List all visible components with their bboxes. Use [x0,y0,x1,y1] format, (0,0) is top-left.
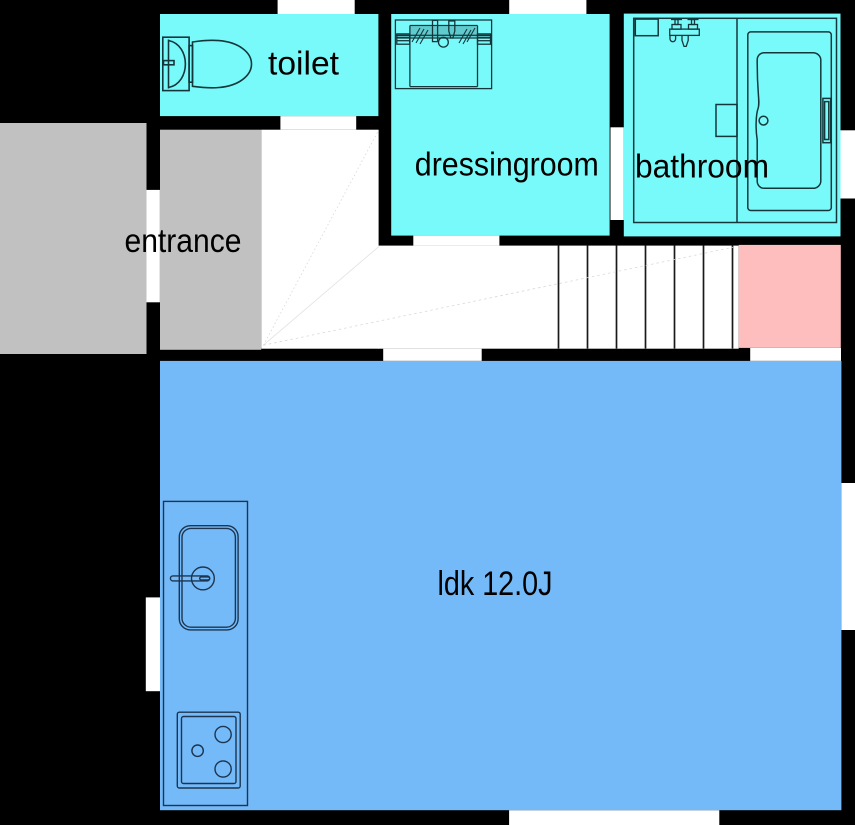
svg-text:bathroom: bathroom [635,148,769,185]
svg-text:ldk 12.0J: ldk 12.0J [438,565,553,603]
svg-text:entrance: entrance [125,222,242,259]
svg-text:dressingroom: dressingroom [415,146,599,183]
svg-text:toilet: toilet [268,45,339,82]
